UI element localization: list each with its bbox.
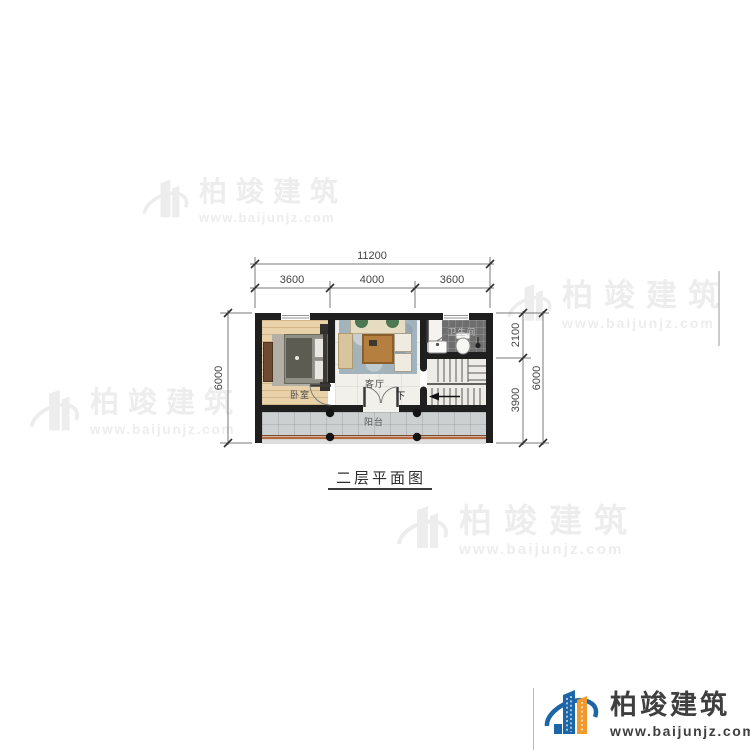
coffee-table [362, 334, 394, 364]
bed-duvet [286, 338, 312, 378]
wall-bottom-left [255, 405, 363, 412]
dim-right-total: 6000 [531, 353, 543, 403]
bedroom-window [281, 313, 310, 320]
watermark-url: www.baijunjz.com [562, 316, 730, 330]
watermark: 柏竣建筑 www.baijunjz.com [503, 276, 730, 334]
balcony-outer-ledge [262, 439, 486, 444]
armchair [394, 353, 412, 372]
balcony-door-opening [363, 405, 399, 412]
watermark: 柏竣建筑 www.baijunjz.com [392, 497, 639, 563]
wall-right [486, 313, 493, 443]
stairs-down-label: 下 [394, 392, 408, 402]
watermark-brand: 柏竣建筑 [199, 178, 347, 206]
headboard [323, 334, 327, 382]
company-logo: 柏竣建筑 www.baijunjz.com [536, 684, 750, 746]
wardrobe [263, 342, 273, 382]
dim-right-seg-2: 3900 [510, 375, 522, 425]
dim-left-total: 6000 [213, 353, 225, 403]
wall-living-stair-lower [420, 390, 427, 405]
watermark-url: www.baijunjz.com [199, 211, 347, 224]
stair-hall-floor [427, 359, 486, 405]
watermark: 柏竣建筑 www.baijunjz.com [138, 172, 347, 230]
bathroom-window [443, 313, 469, 320]
brand-building-icon [392, 497, 452, 563]
watermark: 柏竣建筑 www.baijunjz.com [25, 382, 242, 444]
logo-url-text: www.baijunjz.com [610, 724, 750, 738]
bathroom-door-swing-area [427, 320, 442, 352]
dim-top-seg-1: 3600 [267, 274, 317, 286]
chaise [338, 333, 353, 369]
logo-brand-text: 柏竣建筑 [610, 692, 750, 719]
table-decor [369, 340, 377, 346]
watermark-url: www.baijunjz.com [90, 423, 242, 437]
floorplan-page: 柏竣建筑 www.baijunjz.com 柏竣建筑 www.baijunjz.… [0, 0, 750, 750]
title-underline [328, 488, 432, 490]
drawing-title: 二层平面图 [321, 467, 441, 488]
brand-building-icon [25, 382, 83, 444]
dim-top-seg-3: 3600 [427, 274, 477, 286]
nightstand [320, 382, 330, 391]
wall-bedroom-living [328, 320, 335, 383]
dim-top-seg-2: 4000 [347, 274, 397, 286]
dim-top-total: 11200 [342, 250, 402, 262]
wall-left [255, 313, 262, 443]
duvet-ornament [295, 356, 299, 360]
armchair [394, 333, 412, 352]
room-label-living: 客厅 [357, 380, 393, 390]
wall-bathroom-bottom [420, 352, 493, 359]
watermark-brand: 柏竣建筑 [562, 280, 730, 311]
room-label-bedroom: 卧室 [282, 391, 318, 401]
wall-living-stair-upper [420, 320, 427, 368]
watermark-url: www.baijunjz.com [459, 542, 639, 557]
wall-bottom-right [399, 405, 493, 412]
brand-building-icon [138, 172, 192, 230]
room-label-bathroom: 卫生间 [442, 328, 482, 337]
dim-right-seg-1: 2100 [510, 310, 522, 360]
logo-building-icon [536, 684, 602, 746]
watermark-brand: 柏竣建筑 [459, 504, 639, 537]
room-label-balcony: 阳台 [356, 418, 392, 428]
